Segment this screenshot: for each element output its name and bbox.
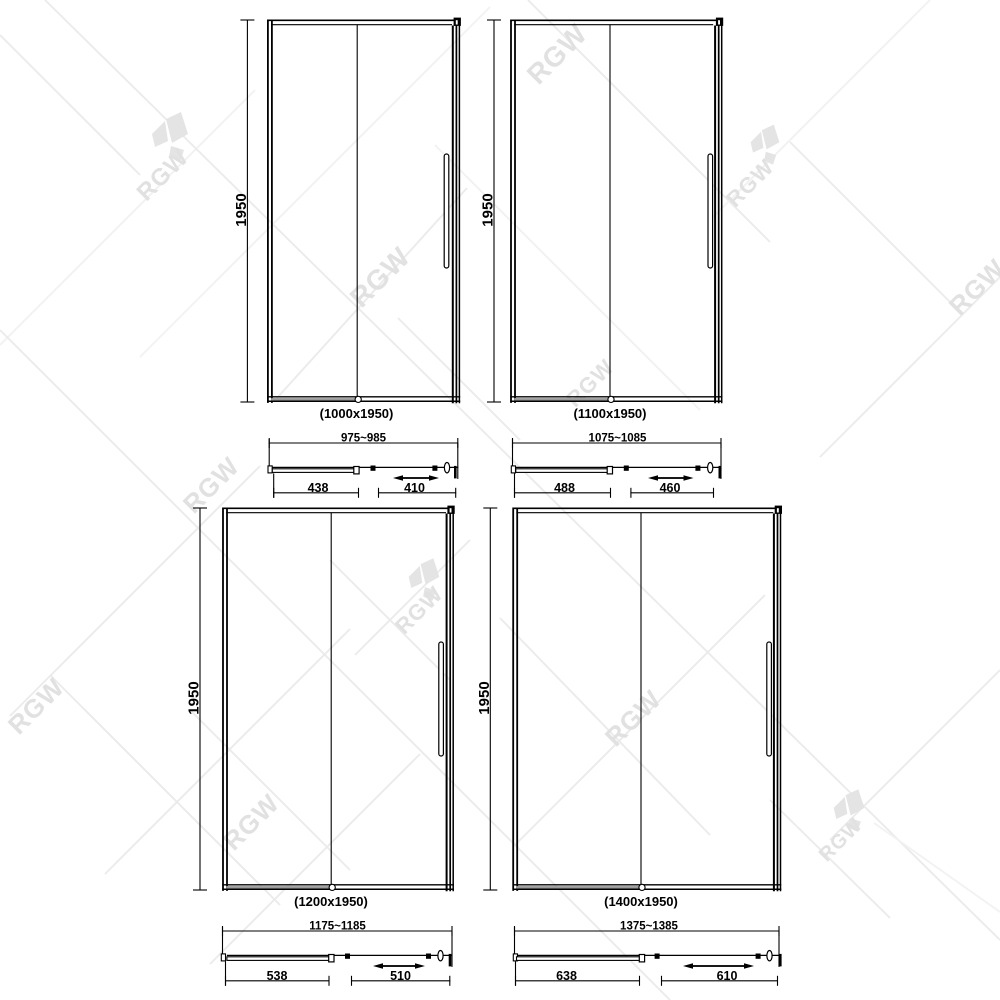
svg-text:(1100x1950): (1100x1950) <box>573 406 646 421</box>
svg-text:1950: 1950 <box>233 193 250 226</box>
svg-text:1950: 1950 <box>476 681 493 714</box>
svg-text:1950: 1950 <box>186 681 203 714</box>
svg-text:(1000x1950): (1000x1950) <box>320 406 394 421</box>
svg-text:1950: 1950 <box>480 193 497 226</box>
svg-text:(1400x1950): (1400x1950) <box>604 894 678 909</box>
svg-text:(1200x1950): (1200x1950) <box>294 894 368 909</box>
